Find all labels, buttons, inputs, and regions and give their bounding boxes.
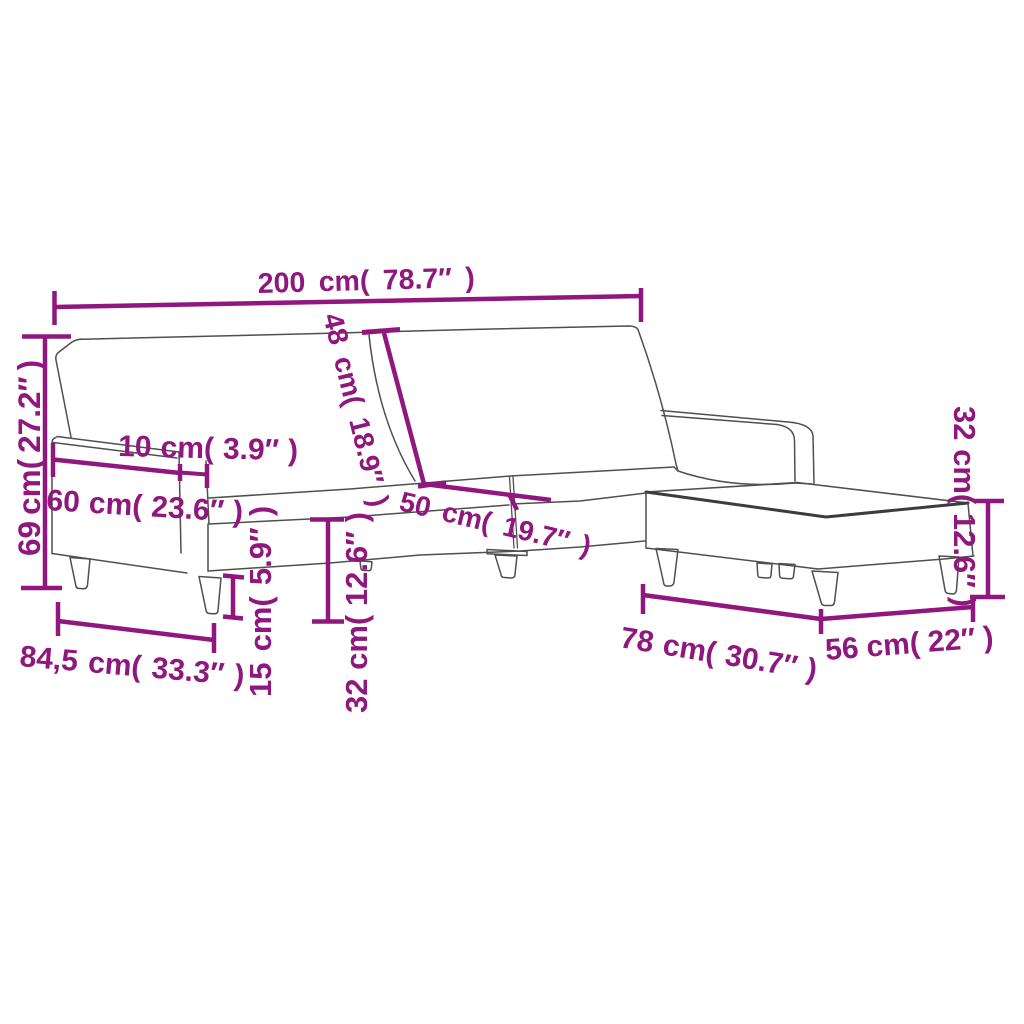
svg-text:200 cm( 78.7″ ): 200 cm( 78.7″ ) — [257, 262, 475, 300]
svg-text:32 cm( 12.6″ ): 32 cm( 12.6″ ) — [947, 406, 982, 607]
svg-text:15 cm( 5.9″ ): 15 cm( 5.9″ ) — [243, 506, 278, 697]
svg-text:69 cm( 27.2″ ): 69 cm( 27.2″ ) — [11, 360, 47, 556]
svg-text:10 cm( 3.9″ ): 10 cm( 3.9″ ) — [118, 430, 299, 467]
svg-text:32 cm( 12.6″ ): 32 cm( 12.6″ ) — [339, 512, 374, 713]
